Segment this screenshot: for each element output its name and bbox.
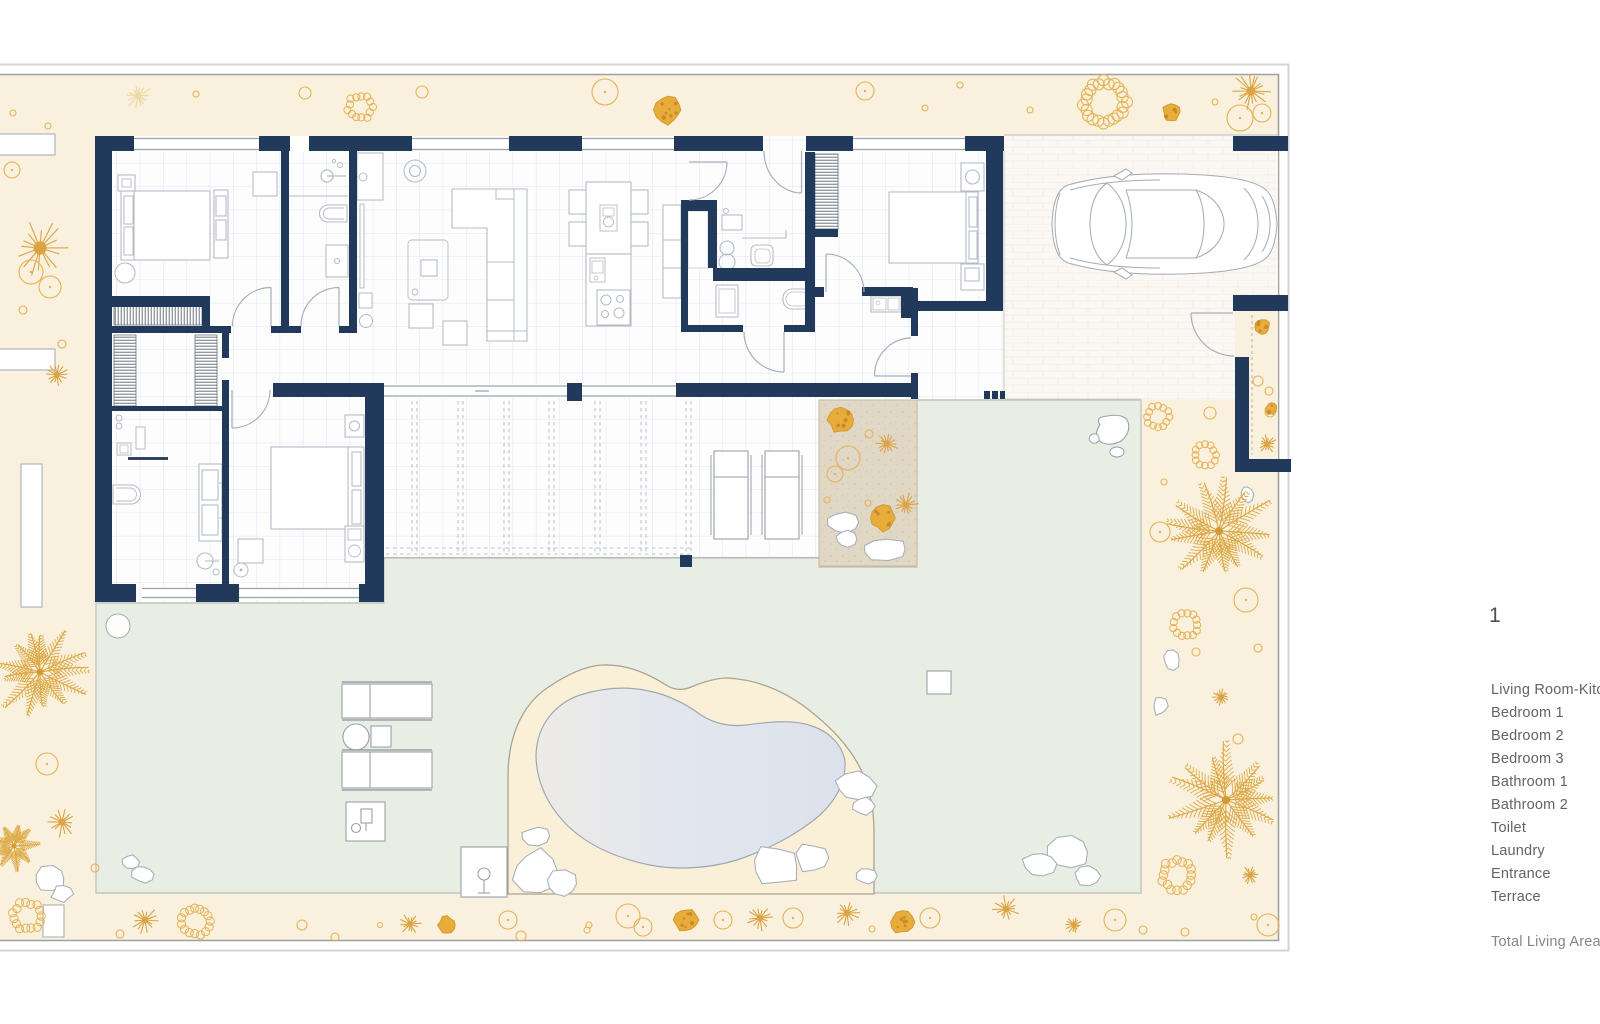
svg-text:Living Room-Kitchen: Living Room-Kitchen xyxy=(1491,682,1600,698)
svg-text:Terrace: Terrace xyxy=(1491,889,1541,905)
svg-text:Bedroom 3: Bedroom 3 xyxy=(1491,751,1564,767)
svg-text:Entrance: Entrance xyxy=(1491,866,1551,882)
svg-text:1: 1 xyxy=(1489,604,1501,627)
svg-text:Laundry: Laundry xyxy=(1491,843,1545,859)
svg-text:Toilet: Toilet xyxy=(1491,820,1526,836)
svg-text:Bathroom 2: Bathroom 2 xyxy=(1491,797,1568,813)
svg-text:Bedroom 1: Bedroom 1 xyxy=(1491,705,1564,721)
svg-text:Bathroom 1: Bathroom 1 xyxy=(1491,774,1568,790)
svg-text:Total Living Area: Total Living Area xyxy=(1491,934,1600,950)
svg-text:Bedroom 2: Bedroom 2 xyxy=(1491,728,1564,744)
